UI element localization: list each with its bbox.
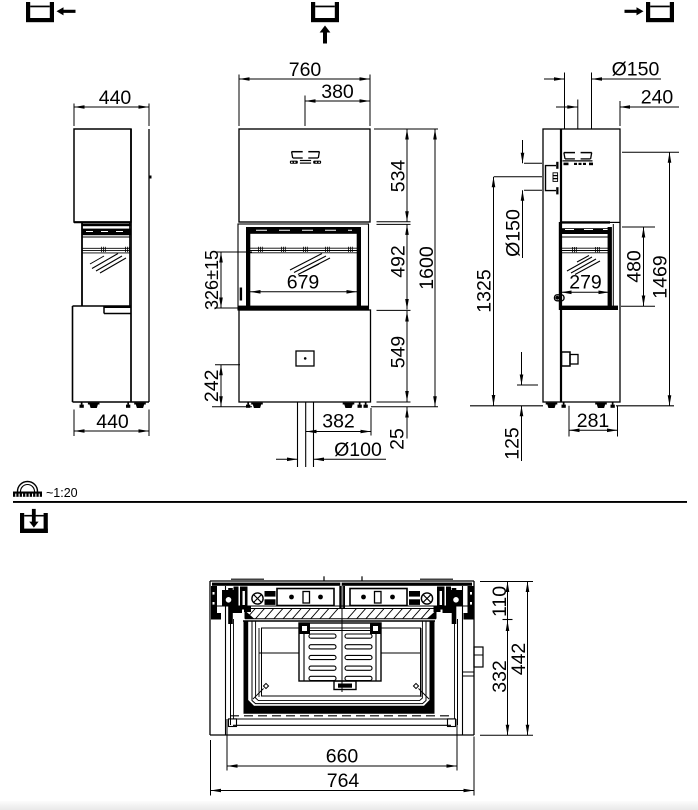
svg-text:549: 549 — [388, 336, 410, 369]
svg-text:242: 242 — [201, 370, 223, 403]
svg-text:25: 25 — [387, 428, 409, 450]
svg-text:125: 125 — [502, 427, 524, 460]
svg-text:440: 440 — [96, 411, 129, 433]
svg-text:326±15: 326±15 — [202, 250, 222, 310]
svg-text:480: 480 — [624, 250, 646, 283]
svg-text:~1:20: ~1:20 — [46, 486, 78, 500]
svg-text:Ø150: Ø150 — [503, 209, 525, 257]
svg-text:442: 442 — [508, 643, 530, 676]
svg-text:279: 279 — [569, 272, 602, 294]
svg-text:760: 760 — [289, 59, 322, 81]
svg-text:764: 764 — [327, 770, 360, 792]
svg-text:1600: 1600 — [416, 246, 438, 290]
svg-text:1469: 1469 — [650, 255, 672, 298]
svg-text:281: 281 — [577, 410, 610, 432]
svg-text:660: 660 — [326, 746, 359, 768]
svg-text:382: 382 — [322, 411, 355, 433]
svg-text:110: 110 — [489, 586, 511, 617]
svg-text:Ø150: Ø150 — [612, 59, 660, 81]
svg-text:240: 240 — [641, 87, 674, 109]
svg-text:492: 492 — [388, 245, 410, 278]
svg-text:440: 440 — [99, 87, 132, 109]
svg-text:1325: 1325 — [474, 269, 496, 313]
svg-text:679: 679 — [287, 272, 320, 294]
svg-text:Ø100: Ø100 — [334, 439, 382, 461]
svg-text:380: 380 — [321, 81, 354, 103]
svg-text:534: 534 — [388, 160, 410, 193]
